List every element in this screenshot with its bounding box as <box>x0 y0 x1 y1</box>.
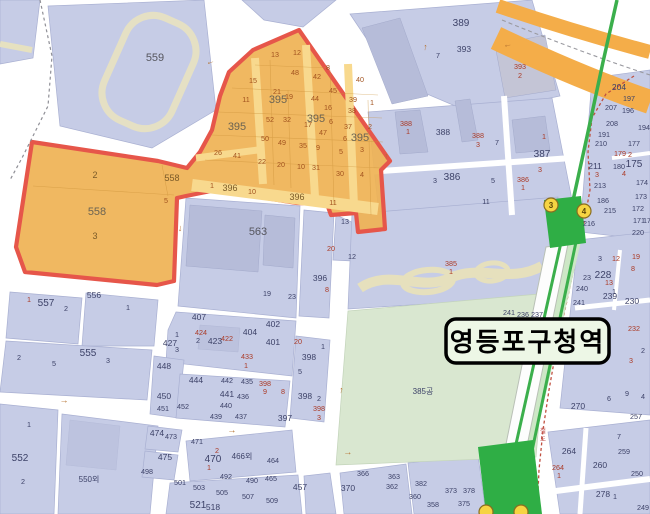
subway-exit-marker <box>479 505 493 514</box>
parcel-label: 375 <box>458 499 470 508</box>
parcel-label: 35 <box>299 141 307 150</box>
parcel-label: 19 <box>632 252 640 261</box>
parcel-label: 4 <box>622 169 626 178</box>
one-way-arrow-icon: ↑ <box>384 151 389 161</box>
parcel-label: 3 <box>92 231 97 241</box>
parcel-label: 358 <box>427 500 439 509</box>
parcel-label: 197 <box>623 94 635 103</box>
parcel-label: 210 <box>595 139 607 148</box>
parcel-label: 2 <box>641 346 645 355</box>
map-canvas[interactable]: 철도 5593893937393213124842815402119444539… <box>0 0 650 514</box>
parcel-label: 2 <box>317 394 321 403</box>
parcel-label: 12 <box>612 254 620 263</box>
parcel-label: 442 <box>221 376 233 385</box>
station-platform-south <box>478 440 542 514</box>
parcel-label: 518 <box>206 502 220 512</box>
parcel-label: 475 <box>158 452 172 462</box>
parcel-label: 3 <box>317 413 321 422</box>
parcel-label: 2 <box>64 304 68 313</box>
parcel-label: 402 <box>266 319 280 329</box>
parcel-label: 452 <box>177 402 189 411</box>
parcel-label: 3 <box>433 176 437 185</box>
parcel-label: 398 <box>302 352 316 362</box>
parcel-label: 556 <box>87 290 101 300</box>
block-555 <box>0 341 152 400</box>
parcel-label: 41 <box>233 151 241 160</box>
parcel-label: 422 <box>221 334 233 343</box>
parcel-label: 2 <box>196 336 200 345</box>
parcel-label: 179 <box>614 149 626 158</box>
parcel-label: 31 <box>312 163 320 172</box>
parcel-label: 264 <box>562 446 576 456</box>
parcel-label: 382 <box>415 479 427 488</box>
parcel-label: 360 <box>409 492 421 501</box>
subway-exit-marker <box>514 505 528 514</box>
svg-text:3: 3 <box>549 201 554 210</box>
parcel-label: 216 <box>583 219 595 228</box>
parcel-label: 32 <box>283 115 291 124</box>
railway-label-char: 철 <box>540 426 546 435</box>
parcel-label: 5 <box>491 176 495 185</box>
parcel-label: 444 <box>189 375 203 385</box>
one-way-arrow-icon: → <box>227 425 237 436</box>
parcel-label: 492 <box>220 472 232 481</box>
parcel-label: 5 <box>164 196 168 205</box>
parcel-label: 436 <box>237 392 249 401</box>
parcel-label: 407 <box>192 312 206 322</box>
railway-label: 철도 <box>540 426 546 443</box>
parcel-label: 207 <box>605 103 617 112</box>
parcel-label: 362 <box>386 482 398 491</box>
parcel-label: 457 <box>293 482 307 492</box>
parcel-label: 42 <box>313 72 321 81</box>
parcel-label: 465 <box>265 474 277 483</box>
parcel-label: 4 <box>360 170 364 179</box>
parcel-label: 441 <box>220 389 234 399</box>
parcel-label: 503 <box>193 483 205 492</box>
parcel-label: 437 <box>235 412 247 421</box>
parcel-label: 5 <box>298 367 302 376</box>
parcel-label: 3 <box>598 254 602 263</box>
parcel-label: 2 <box>628 150 632 159</box>
parcel-label: 260 <box>593 460 607 470</box>
subway-exit-marker: 3 <box>544 198 558 212</box>
parcel-label: 1 <box>521 183 525 192</box>
parcel-label: 3 <box>538 165 542 174</box>
parcel-label: 19 <box>263 289 271 298</box>
parcel-label: 39 <box>349 95 357 104</box>
parcel-label: 16 <box>324 103 332 112</box>
parcel-label: 396 <box>222 183 237 193</box>
parcel-label: 373 <box>445 486 457 495</box>
parcel-label: 385공 <box>413 387 434 396</box>
parcel-label: 366 <box>357 469 369 478</box>
parcel-label: 3 <box>360 145 364 154</box>
parcel-label: 2 <box>21 477 25 486</box>
parcel-label: 1 <box>542 132 546 141</box>
parcel-label: 9 <box>625 389 629 398</box>
parcel-label: 5 <box>339 147 343 156</box>
parcel-label: 5 <box>52 359 56 368</box>
parcel-label: 507 <box>242 492 254 501</box>
parcel-label: 250 <box>631 469 643 478</box>
parcel-label: 186 <box>597 196 609 205</box>
parcel-label: 557 <box>38 298 55 309</box>
parcel-label: 1 <box>210 181 214 190</box>
parcel-label: 49 <box>278 138 286 147</box>
parcel-label: 4 <box>641 392 645 401</box>
block <box>242 0 336 27</box>
parcel-label: 10 <box>248 187 256 196</box>
parcel-label: 1 <box>449 267 453 276</box>
parcel-label: 439 <box>210 412 222 421</box>
parcel-label: 3 <box>595 170 599 179</box>
parcel-label: 3 <box>629 356 633 365</box>
parcel-label: 220 <box>632 228 644 237</box>
parcel-label: 170 <box>643 216 650 225</box>
parcel-label: 44 <box>311 94 319 103</box>
parcel-label: 47 <box>319 128 327 137</box>
parcel-label: 1 <box>27 295 31 304</box>
parcel-label: 15 <box>249 76 257 85</box>
parcel-label: 2 <box>368 122 372 131</box>
parcel-label: 555 <box>80 348 97 359</box>
parcel-label: 240 <box>576 284 588 293</box>
parcel-label: 12 <box>348 252 356 261</box>
parcel-label: 37 <box>344 122 352 131</box>
parcel-label: 22 <box>258 157 266 166</box>
parcel-label: 1 <box>244 361 248 370</box>
parcel-label: 241 <box>573 298 585 307</box>
parcel-label: 38 <box>348 106 356 115</box>
parcel-label: 191 <box>598 130 610 139</box>
parcel-label: 172 <box>632 204 644 213</box>
parcel-label: 396 <box>313 273 327 283</box>
parcel-label: 10 <box>297 162 305 171</box>
parcel-label: 249 <box>637 503 649 512</box>
parcel-label: 194 <box>638 123 650 132</box>
parcel-label: 440 <box>220 401 232 410</box>
station-label: 영등포구청역 <box>446 319 609 363</box>
parcel-label: 11 <box>329 198 336 207</box>
parcel-label: 1 <box>612 287 616 296</box>
parcel-label: 8 <box>325 285 329 294</box>
parcel-label: 558 <box>88 206 106 218</box>
parcel-label: 397 <box>278 413 292 423</box>
railway-label-char: 도 <box>540 435 546 443</box>
parcel-label: 2 <box>518 71 522 80</box>
parcel-label: 450 <box>157 391 171 401</box>
parcel-label: 395 <box>269 94 287 106</box>
parcel-label: 177 <box>628 139 640 148</box>
parcel-label: 505 <box>216 488 228 497</box>
parcel-label: 552 <box>12 453 29 464</box>
parcel-label: 204 <box>612 82 626 92</box>
parcel-label: 563 <box>249 226 267 238</box>
parcel-label: 257 <box>630 412 642 421</box>
parcel-label: 498 <box>141 467 153 476</box>
parcel-label: 1 <box>126 303 130 312</box>
parcel-label: 393 <box>514 62 526 71</box>
parcel-label: 9 <box>263 387 267 396</box>
parcel-label: 241 <box>503 308 515 317</box>
parcel-label: 509 <box>266 496 278 505</box>
parcel-label: 8 <box>281 387 285 396</box>
parcel-label: 8 <box>631 264 635 273</box>
parcel-label: 23 <box>583 273 591 282</box>
parcel-label: 388 <box>436 127 450 137</box>
parcel-label: 48 <box>291 68 299 77</box>
one-way-arrow-icon: → <box>59 395 69 406</box>
parcel-label: 8 <box>326 63 330 72</box>
one-way-arrow-icon: ← <box>204 55 216 67</box>
parcel-label: 451 <box>157 404 169 413</box>
parcel-label: 6 <box>607 394 611 403</box>
parcel-label: 270 <box>571 401 585 411</box>
parcel-label: 2 <box>92 170 97 180</box>
parcel-label: 52 <box>266 115 274 124</box>
parcel-label: 259 <box>618 447 630 456</box>
parcel-label: 501 <box>174 478 186 487</box>
parcel-label: 20 <box>277 160 285 169</box>
parcel-label: 466외 <box>232 451 253 461</box>
parcel-label: 40 <box>356 75 364 84</box>
parcel-label: 435 <box>241 377 253 386</box>
parcel-label: 550외 <box>79 474 100 484</box>
parcel-label: 388 <box>472 131 484 140</box>
parcel-label: 11 <box>482 197 489 206</box>
parcel-label: 1 <box>321 342 325 351</box>
parcel-label: 448 <box>157 361 171 371</box>
parcel-label: 474 <box>150 428 164 438</box>
parcel-label: 30 <box>336 169 344 178</box>
parcel-label: 1 <box>207 463 211 472</box>
svg-text:4: 4 <box>582 207 587 216</box>
parcel-label: 230 <box>625 296 639 306</box>
parcel-label: 20 <box>294 337 302 346</box>
parcel-label: 490 <box>246 476 258 485</box>
block <box>299 210 334 318</box>
parcel-label: 6 <box>343 134 347 143</box>
parcel-label: 7 <box>495 138 499 147</box>
parcel-label: 393 <box>457 44 471 54</box>
parcel-label: 471 <box>191 437 203 446</box>
parcel-label: 213 <box>594 181 606 190</box>
parcel-label: 2 <box>17 353 21 362</box>
parcel-label: 7 <box>617 432 621 441</box>
parcel-label: 23 <box>288 292 296 301</box>
parcel-label: 26 <box>214 148 222 157</box>
parcel-label: 196 <box>622 106 634 115</box>
parcel-label: 521 <box>190 500 207 511</box>
parcel-label: 215 <box>604 206 616 215</box>
parcel-label: 395 <box>351 132 369 144</box>
block <box>0 0 40 64</box>
parcel-label: 175 <box>626 159 643 170</box>
parcel-label: 13 <box>271 50 279 59</box>
parcel-label: 1 <box>613 492 617 501</box>
one-way-arrow-icon: ↓ <box>178 223 183 233</box>
parcel-label: 395 <box>228 121 246 133</box>
parcel-label: 396 <box>289 192 304 202</box>
parcel-label: 404 <box>243 327 257 337</box>
parcel-label: 398 <box>298 391 312 401</box>
parcel-label: 363 <box>388 472 400 481</box>
parcel-label: 559 <box>146 52 164 64</box>
one-way-arrow-icon: → <box>343 447 353 458</box>
block-501 <box>166 475 302 514</box>
parcel-label: 401 <box>266 337 280 347</box>
parcel-label: 473 <box>165 432 177 441</box>
parcel-label: 389 <box>453 18 470 29</box>
parcel-label: 208 <box>606 119 618 128</box>
parcel-label: 464 <box>267 456 279 465</box>
parcel-label: 1 <box>27 420 31 429</box>
parcel-label: 395 <box>307 113 325 125</box>
parcel-label: 174 <box>636 178 648 187</box>
parcel-label: 3 <box>175 345 179 354</box>
parcel-label: 7 <box>436 51 440 60</box>
parcel-label: 6 <box>329 117 333 126</box>
parcel-label: 20 <box>327 244 335 253</box>
station-label-text: 영등포구청역 <box>450 327 606 357</box>
parcel-label: 3 <box>106 356 110 365</box>
parcel-label: 387 <box>534 149 551 160</box>
parcel-label: 398 <box>313 404 325 413</box>
parcel-label: 45 <box>329 86 337 95</box>
parcel-label: 1 <box>557 471 561 480</box>
parcel-label: 433 <box>241 352 253 361</box>
parcel-label: 370 <box>341 483 355 493</box>
parcel-label: 13 <box>341 217 349 226</box>
parcel-label: 386 <box>444 172 461 183</box>
parcel-label: 558 <box>164 173 179 183</box>
parcel-label: 50 <box>261 134 269 143</box>
parcel-label: 378 <box>463 486 475 495</box>
parcel-label: 13 <box>605 278 613 287</box>
parcel-label: 12 <box>293 48 301 57</box>
parcel-label: 1 <box>370 98 374 107</box>
block-556 <box>82 293 158 346</box>
parcel-label: 11 <box>242 95 249 104</box>
parcel-label: 1 <box>406 127 410 136</box>
parcel-label: 173 <box>635 192 647 201</box>
subway-exit-marker: 4 <box>577 204 591 218</box>
parcel-label: 278 <box>596 489 610 499</box>
parcel-label: 3 <box>476 140 480 149</box>
block-457 <box>304 473 336 514</box>
parcel-label: 232 <box>628 324 640 333</box>
parcel-label: 9 <box>316 143 320 152</box>
